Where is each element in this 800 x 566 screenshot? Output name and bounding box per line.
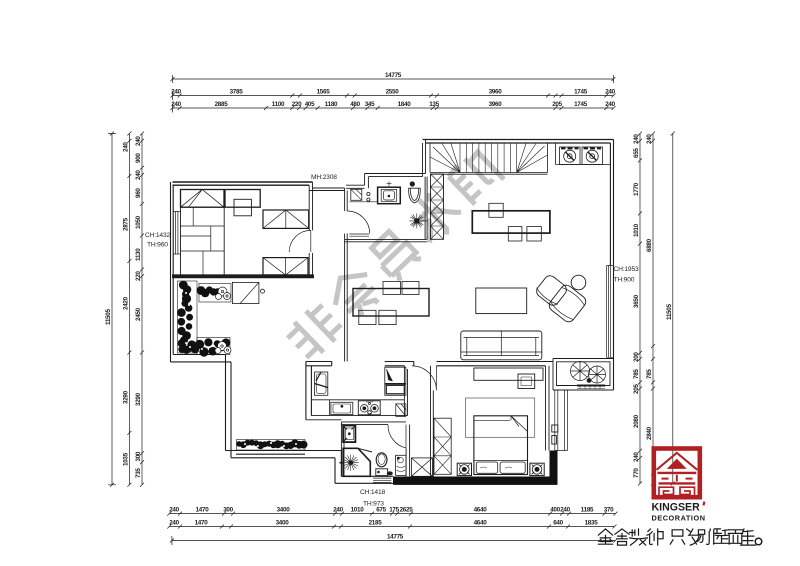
- svg-text:300: 300: [135, 451, 142, 461]
- svg-text:175: 175: [389, 507, 399, 514]
- svg-text:220: 220: [135, 271, 142, 281]
- svg-text:785: 785: [646, 369, 653, 379]
- svg-text:640: 640: [553, 520, 563, 527]
- svg-text:655: 655: [633, 148, 640, 158]
- svg-text:MH:2308: MH:2308: [311, 174, 337, 181]
- svg-text:CH:1432: CH:1432: [145, 232, 170, 239]
- svg-text:3290: 3290: [123, 390, 130, 404]
- svg-text:240: 240: [135, 136, 142, 146]
- svg-text:TH:973: TH:973: [363, 501, 384, 508]
- svg-text:200: 200: [633, 352, 640, 362]
- svg-text:1100: 1100: [272, 101, 285, 108]
- svg-text:240: 240: [333, 507, 343, 514]
- svg-text:1745: 1745: [574, 89, 588, 96]
- svg-text:240: 240: [633, 134, 640, 144]
- svg-text:2840: 2840: [646, 426, 653, 440]
- svg-text:KINGSER: KINGSER: [652, 502, 701, 514]
- svg-text:205: 205: [633, 384, 640, 394]
- svg-text:1035: 1035: [123, 452, 130, 466]
- svg-text:240: 240: [169, 507, 179, 514]
- svg-text:405: 405: [305, 101, 315, 108]
- svg-text:960: 960: [135, 188, 142, 198]
- svg-text:2550: 2550: [386, 89, 400, 96]
- svg-text:240: 240: [135, 170, 142, 180]
- svg-text:1770: 1770: [633, 182, 640, 196]
- svg-text:1180: 1180: [325, 101, 338, 108]
- svg-text:1010: 1010: [351, 507, 365, 514]
- svg-text:1840: 1840: [398, 101, 412, 108]
- svg-text:220: 220: [292, 101, 302, 108]
- svg-text:1470: 1470: [196, 507, 210, 514]
- svg-text:735: 735: [135, 468, 142, 478]
- svg-text:240: 240: [123, 142, 130, 152]
- svg-text:2625: 2625: [400, 507, 414, 514]
- svg-text:675: 675: [376, 507, 386, 514]
- svg-text:240: 240: [171, 101, 181, 108]
- svg-text:400: 400: [550, 507, 560, 514]
- svg-text:2420: 2420: [123, 296, 130, 310]
- svg-text:240: 240: [169, 520, 179, 527]
- svg-text:TH:900: TH:900: [614, 277, 635, 284]
- svg-text:14775: 14775: [387, 534, 404, 541]
- svg-text:TH:960: TH:960: [147, 242, 168, 249]
- svg-text:3960: 3960: [489, 101, 503, 108]
- svg-text:CH:1418: CH:1418: [360, 489, 385, 496]
- svg-text:4640: 4640: [474, 520, 488, 527]
- svg-text:480: 480: [350, 101, 360, 108]
- svg-text:1130: 1130: [135, 248, 142, 261]
- svg-text:3400: 3400: [277, 507, 291, 514]
- svg-text:785: 785: [633, 369, 640, 379]
- svg-text:3960: 3960: [489, 89, 503, 96]
- svg-text:240: 240: [605, 101, 615, 108]
- svg-text:240: 240: [646, 134, 653, 144]
- svg-text:1470: 1470: [195, 520, 209, 527]
- svg-text:2875: 2875: [123, 217, 130, 231]
- svg-text:1565: 1565: [317, 89, 331, 96]
- svg-text:DECORATION: DECORATION: [652, 514, 706, 523]
- svg-text:770: 770: [633, 468, 640, 478]
- svg-text:1185: 1185: [581, 507, 594, 514]
- svg-text:1010: 1010: [633, 223, 640, 237]
- svg-text:1050: 1050: [135, 215, 142, 229]
- svg-text:240: 240: [560, 507, 570, 514]
- svg-text:6880: 6880: [646, 238, 653, 252]
- svg-text:3650: 3650: [633, 294, 640, 308]
- svg-text:2450: 2450: [135, 307, 142, 321]
- svg-text:2080: 2080: [633, 414, 640, 428]
- svg-text:370: 370: [604, 507, 614, 514]
- svg-text:135: 135: [429, 101, 439, 108]
- svg-text:240: 240: [605, 89, 615, 96]
- svg-text:900: 900: [135, 153, 142, 163]
- svg-text:1835: 1835: [585, 520, 599, 527]
- svg-text:14775: 14775: [385, 72, 402, 79]
- svg-text:345: 345: [365, 101, 375, 108]
- svg-text:2885: 2885: [215, 101, 229, 108]
- svg-text:3400: 3400: [276, 520, 290, 527]
- svg-text:2185: 2185: [369, 520, 383, 527]
- svg-text:11505: 11505: [666, 304, 673, 320]
- svg-text:3290: 3290: [135, 392, 142, 406]
- svg-text:205: 205: [552, 101, 562, 108]
- svg-text:11505: 11505: [105, 309, 112, 325]
- svg-text:CH:1953: CH:1953: [614, 266, 639, 273]
- svg-text:300: 300: [223, 507, 233, 514]
- svg-text:1745: 1745: [574, 101, 588, 108]
- svg-text:4640: 4640: [474, 507, 488, 514]
- svg-text:240: 240: [633, 452, 640, 462]
- svg-text:3785: 3785: [230, 89, 244, 96]
- svg-text:240: 240: [171, 89, 181, 96]
